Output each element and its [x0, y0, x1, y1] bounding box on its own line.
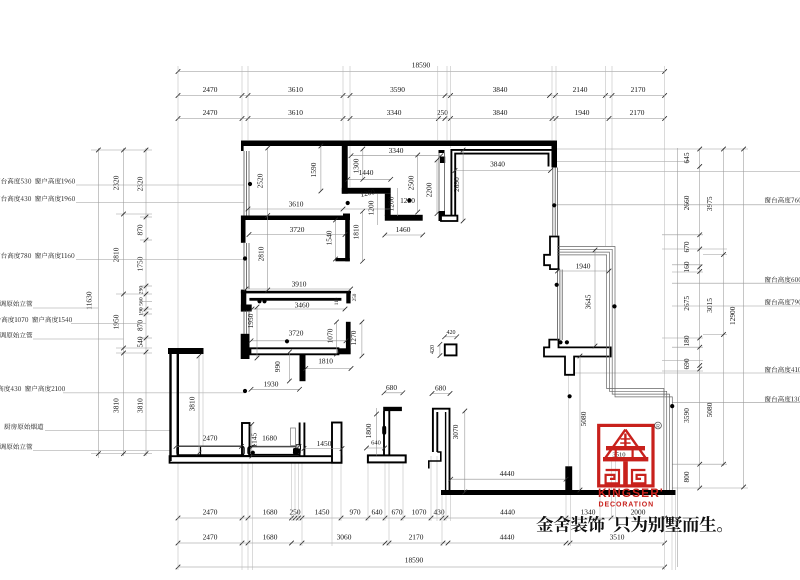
svg-text:3510: 3510 [610, 533, 625, 542]
svg-text:3015: 3015 [705, 298, 714, 313]
svg-text:670: 670 [682, 241, 691, 252]
svg-text:3840: 3840 [493, 85, 508, 94]
svg-text:1460: 1460 [396, 225, 411, 234]
svg-text:1950: 1950 [112, 314, 121, 329]
svg-text:2470: 2470 [203, 508, 218, 517]
svg-text:2690: 2690 [452, 177, 461, 192]
svg-text:2810: 2810 [257, 246, 266, 261]
svg-text:670: 670 [391, 508, 402, 517]
svg-text:1590: 1590 [309, 162, 318, 177]
svg-text:1940: 1940 [575, 108, 590, 117]
svg-text:1440: 1440 [359, 168, 374, 177]
svg-text:3840: 3840 [490, 160, 505, 169]
svg-text:680: 680 [435, 384, 446, 393]
svg-text:3810: 3810 [136, 398, 145, 413]
svg-text:1680: 1680 [262, 434, 277, 443]
svg-text:1070: 1070 [325, 328, 334, 343]
svg-text:2170: 2170 [630, 108, 645, 117]
svg-text:420: 420 [430, 345, 436, 354]
svg-text:2200: 2200 [425, 182, 434, 197]
svg-text:5080: 5080 [579, 411, 588, 426]
svg-text:12900: 12900 [728, 306, 737, 325]
svg-text:870: 870 [136, 224, 145, 235]
svg-text:800: 800 [682, 471, 691, 482]
svg-text:2170: 2170 [631, 85, 646, 94]
svg-text:3590: 3590 [682, 408, 691, 423]
svg-text:18590: 18590 [405, 556, 424, 565]
svg-text:160: 160 [682, 261, 691, 272]
svg-text:2000: 2000 [631, 508, 646, 517]
svg-text:1950: 1950 [246, 313, 255, 328]
svg-text:3460: 3460 [295, 301, 310, 310]
svg-text:5080: 5080 [705, 402, 714, 417]
svg-text:640: 640 [371, 440, 381, 447]
svg-text:645: 645 [682, 152, 691, 163]
svg-text:2470: 2470 [203, 85, 218, 94]
svg-text:3610: 3610 [288, 85, 303, 94]
svg-text:3840: 3840 [493, 108, 508, 117]
svg-text:2170: 2170 [409, 533, 424, 542]
svg-text:3720: 3720 [290, 225, 305, 234]
svg-text:1540: 1540 [325, 230, 334, 245]
svg-text:1450: 1450 [315, 508, 330, 517]
svg-text:1200: 1200 [367, 200, 376, 215]
svg-text:2470: 2470 [203, 533, 218, 542]
svg-text:3720: 3720 [289, 329, 304, 338]
svg-text:2660: 2660 [682, 195, 691, 210]
svg-text:3975: 3975 [705, 196, 714, 211]
svg-text:3340: 3340 [387, 108, 402, 117]
svg-text:2520: 2520 [256, 173, 265, 188]
svg-text:11630: 11630 [85, 291, 94, 310]
svg-text:1450: 1450 [317, 439, 332, 448]
svg-text:3610: 3610 [288, 108, 303, 117]
svg-text:4440: 4440 [500, 533, 515, 542]
svg-text:3645: 3645 [584, 294, 593, 309]
svg-text:1800: 1800 [364, 423, 373, 438]
svg-text:680: 680 [386, 383, 397, 392]
svg-text:990: 990 [273, 361, 282, 372]
svg-text:2810: 2810 [112, 247, 121, 262]
svg-text:3810: 3810 [188, 396, 197, 411]
svg-text:4440: 4440 [500, 508, 515, 517]
svg-text:4440: 4440 [500, 469, 515, 478]
svg-text:250: 250 [437, 108, 448, 117]
svg-text:1070: 1070 [412, 508, 427, 517]
svg-text:1270: 1270 [349, 330, 358, 345]
svg-text:1810: 1810 [352, 224, 361, 239]
svg-text:2320: 2320 [136, 176, 145, 191]
svg-text:430: 430 [433, 508, 444, 517]
svg-text:3610: 3610 [289, 200, 304, 209]
svg-text:3070: 3070 [451, 424, 460, 439]
svg-text:420: 420 [447, 330, 456, 336]
svg-text:1680: 1680 [263, 533, 278, 542]
svg-text:690: 690 [682, 358, 691, 369]
svg-text:R: R [656, 424, 660, 430]
svg-text:1940: 1940 [576, 262, 591, 271]
svg-text:3340: 3340 [389, 146, 404, 155]
svg-text:190: 190 [139, 307, 145, 316]
svg-text:3910: 3910 [292, 280, 307, 289]
svg-text:540: 540 [136, 336, 145, 347]
svg-text:3060: 3060 [337, 533, 352, 542]
svg-text:1340: 1340 [581, 508, 596, 517]
svg-text:1930: 1930 [264, 380, 279, 389]
svg-text:2675: 2675 [682, 296, 691, 311]
svg-text:1300: 1300 [352, 158, 361, 173]
svg-text:110: 110 [334, 297, 340, 305]
svg-text:870: 870 [136, 320, 145, 331]
svg-text:2470: 2470 [203, 108, 218, 117]
svg-text:250: 250 [352, 293, 358, 301]
svg-text:970: 970 [349, 508, 360, 517]
svg-text:560: 560 [139, 297, 145, 306]
svg-text:3810: 3810 [112, 398, 121, 413]
svg-text:1200: 1200 [387, 196, 396, 211]
svg-text:290: 290 [139, 286, 145, 295]
svg-text:3590: 3590 [390, 85, 405, 94]
svg-text:1750: 1750 [136, 256, 145, 271]
svg-text:KINGSER': KINGSER' [598, 486, 664, 500]
svg-text:2140: 2140 [573, 85, 588, 94]
svg-text:2320: 2320 [112, 175, 121, 190]
svg-text:640: 640 [371, 508, 382, 517]
svg-text:2470: 2470 [203, 434, 218, 443]
svg-text:DECORATION: DECORATION [599, 502, 655, 509]
svg-text:1810: 1810 [318, 357, 333, 366]
svg-text:1680: 1680 [263, 508, 278, 517]
svg-text:2500: 2500 [407, 175, 416, 190]
svg-text:180: 180 [682, 335, 691, 346]
svg-text:18590: 18590 [412, 61, 431, 70]
